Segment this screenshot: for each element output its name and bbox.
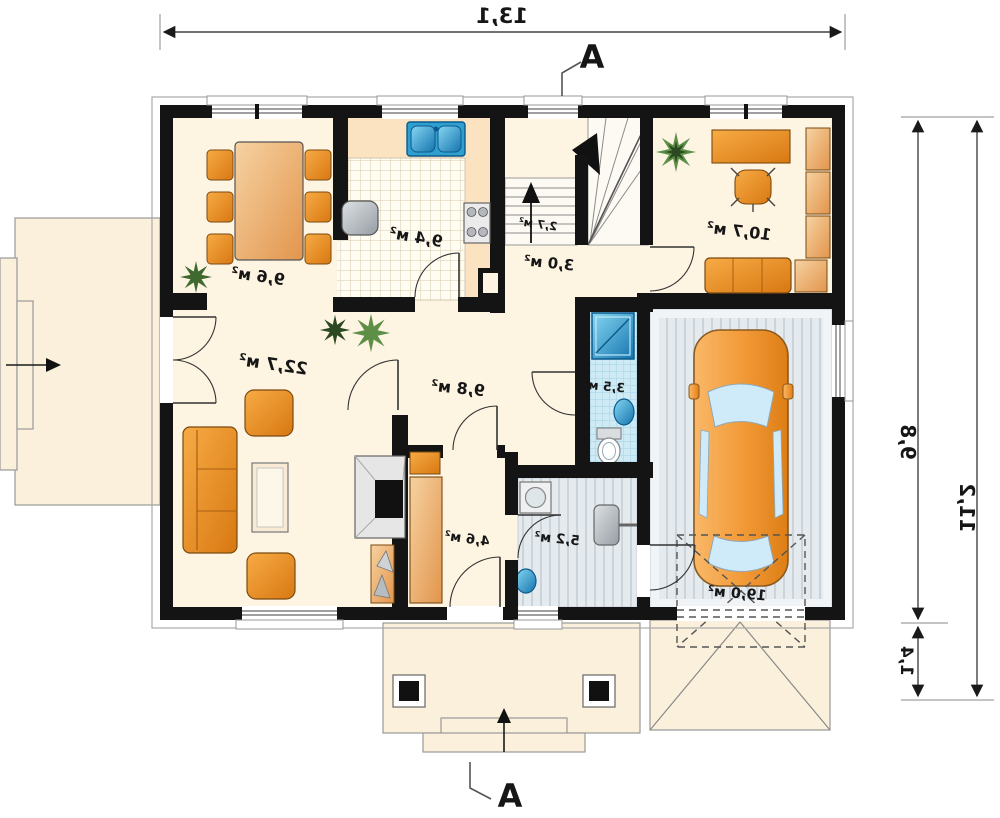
- window-office: [705, 96, 787, 119]
- wall-corridor-utility-a: [505, 452, 518, 515]
- opening-terrace-door: [160, 317, 173, 403]
- dimension-width-label: 13,1: [476, 4, 528, 28]
- entrance-porch: [383, 623, 640, 752]
- toilet-tank: [597, 428, 621, 439]
- porch-column-right-core: [589, 681, 609, 701]
- window-kitchen: [377, 96, 463, 119]
- car-windshield: [708, 384, 774, 427]
- plant-living-1: [320, 315, 350, 345]
- section-mark-top: [562, 62, 581, 96]
- section-label-bottom: A: [497, 777, 522, 815]
- car-rear-window: [708, 536, 774, 572]
- porch-column-left-core: [399, 681, 419, 701]
- fridge: [342, 201, 378, 235]
- kitchen-faucet: [434, 127, 439, 132]
- dimension-total-depth-label: 11,2: [955, 483, 979, 532]
- window-garage: [832, 321, 853, 401]
- fireplace: [355, 456, 405, 538]
- car-side-window-right: [773, 430, 783, 518]
- flue-niche: [483, 273, 498, 293]
- office-side-table: [795, 260, 827, 292]
- dining-table: [235, 142, 303, 260]
- corridor-cabinet: [410, 452, 440, 474]
- kitchen-sink-basin-left: [411, 126, 435, 152]
- section-mark-bottom: [470, 762, 491, 799]
- dimension-garage-ext-label: 1,4: [896, 646, 916, 676]
- wall-utility-top: [505, 465, 575, 478]
- office-sofa: [705, 258, 791, 293]
- living-armchair-1: [245, 390, 293, 436]
- section-label-top: A: [579, 38, 604, 76]
- opening-entrance-door: [447, 606, 503, 621]
- wall-corridor-utility-b: [505, 560, 518, 608]
- car-mirror-left: [689, 384, 699, 399]
- opening-garage-side-door: [637, 545, 650, 597]
- car-mirror-right: [783, 384, 793, 399]
- shoe-shelf: [371, 545, 394, 603]
- living-sofa: [183, 427, 237, 553]
- window-dining: [207, 96, 307, 119]
- plant-office-inner: [665, 141, 687, 163]
- wall-hallway-corridor-b: [497, 445, 505, 458]
- car: [689, 330, 793, 586]
- plant-dining: [180, 261, 212, 293]
- toilet-bowl: [598, 438, 620, 464]
- garage-door: [677, 606, 805, 621]
- office-desk: [712, 130, 790, 163]
- wall-office-garage: [637, 293, 845, 309]
- washing-machine-door: [526, 488, 546, 508]
- wall-stairs-divider: [575, 155, 588, 245]
- window-living: [236, 606, 343, 629]
- plant-living-2: [352, 314, 390, 352]
- boiler: [594, 505, 619, 545]
- wall-office-left: [640, 117, 653, 245]
- floor-plan-page: 13,1 9,8 11,2 1,4 A A 9,6 м² 9,4 м² 2,7 …: [0, 0, 1000, 818]
- corridor-wardrobe: [410, 477, 442, 603]
- window-utility: [514, 606, 562, 629]
- wall-kitchen-bottom: [333, 297, 415, 312]
- terrace: [0, 218, 160, 505]
- wall-dining-living-stub: [172, 293, 207, 310]
- coffee-table-top: [257, 468, 283, 527]
- kitchen-sink-basin-right: [438, 126, 461, 152]
- office-wardrobe: [806, 128, 830, 258]
- window-stairs: [524, 96, 582, 119]
- bathroom-sink: [614, 399, 634, 425]
- floor-plan-drawing: 13,1 9,8 11,2 1,4 A A 9,6 м² 9,4 м² 2,7 …: [0, 0, 1000, 818]
- utility-sink: [516, 569, 536, 593]
- living-armchair-2: [247, 553, 295, 599]
- car-side-window-left: [699, 430, 709, 518]
- dimension-depth-label: 9,8: [896, 424, 920, 459]
- terrace-step-outer: [0, 258, 17, 470]
